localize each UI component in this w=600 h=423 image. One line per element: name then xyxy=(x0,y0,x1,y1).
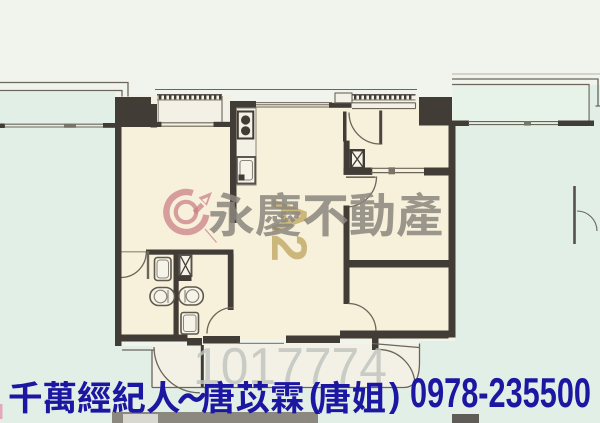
svg-text:): ) xyxy=(389,377,400,415)
svg-text:0978-235500: 0978-235500 xyxy=(410,369,591,416)
